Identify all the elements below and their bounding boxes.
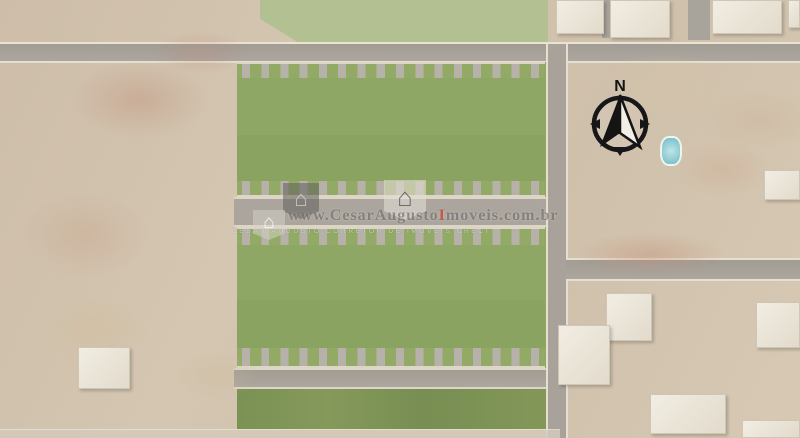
building-roof [788, 0, 800, 28]
building-roof [556, 0, 604, 34]
buildings-row-3 [239, 245, 543, 287]
building-roof [558, 325, 610, 385]
building-roof [606, 293, 652, 341]
swimming-pool [660, 136, 682, 166]
terrain-patch [20, 190, 150, 280]
terrain-patch [672, 142, 772, 197]
driveway-strip [237, 181, 545, 197]
housing-row-4 [237, 300, 545, 368]
building-roof [764, 170, 800, 200]
tree-hedge [237, 389, 546, 429]
buildings-row-1 [239, 78, 543, 120]
housing-row-2 [237, 135, 545, 197]
park-block [260, 0, 548, 42]
street-bottom [234, 368, 546, 389]
housing-row-1 [237, 62, 545, 135]
building-roof [610, 0, 670, 38]
compass-rose: N [586, 76, 654, 160]
driveway-strip [237, 348, 545, 368]
road-bottom-edge [0, 429, 560, 438]
terrain-patch [70, 60, 210, 140]
minor-road [688, 0, 710, 40]
buildings-row-4 [239, 306, 543, 348]
street-middle [234, 197, 546, 227]
aerial-site-plan: N ⌂ ⌂ ⌂ www.CesarAugustoImoveis.com.br C… [0, 0, 800, 438]
building-roof [650, 394, 726, 434]
road-top [0, 42, 800, 63]
building-roof [756, 302, 800, 348]
building-roof [78, 347, 130, 389]
building-roof [712, 0, 782, 34]
driveway-strip [237, 227, 545, 245]
terrain-patch [700, 90, 800, 150]
driveway-strip [237, 62, 545, 78]
buildings-row-2 [239, 143, 543, 181]
housing-row-3 [237, 227, 545, 300]
road-right-horizontal [566, 258, 800, 281]
building-roof [742, 420, 800, 438]
compass-north-label: N [614, 78, 626, 95]
